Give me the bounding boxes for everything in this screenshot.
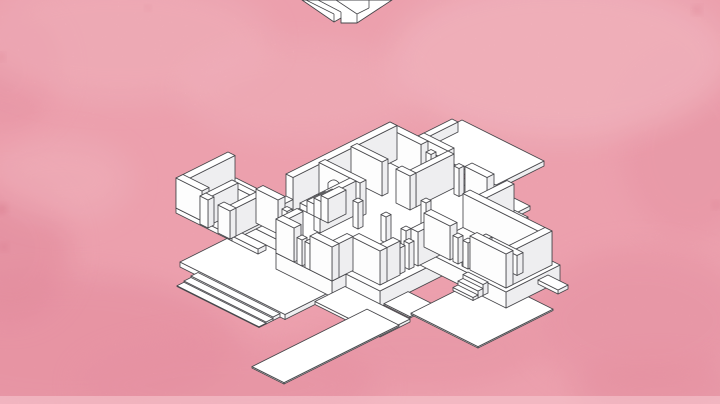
hall-wall-b xyxy=(396,166,416,210)
se-post-1 xyxy=(404,239,414,270)
court-room-wall-s2 xyxy=(218,202,236,239)
axonometric-house-drawing xyxy=(0,0,720,404)
floor-post-1 xyxy=(353,198,363,229)
rr-post-1 xyxy=(453,233,463,264)
pink-watercolor-canvas xyxy=(0,0,720,404)
ne-post-3 xyxy=(454,164,464,197)
court-room-wall-s1 xyxy=(200,193,214,228)
floor-post-2 xyxy=(381,212,391,243)
